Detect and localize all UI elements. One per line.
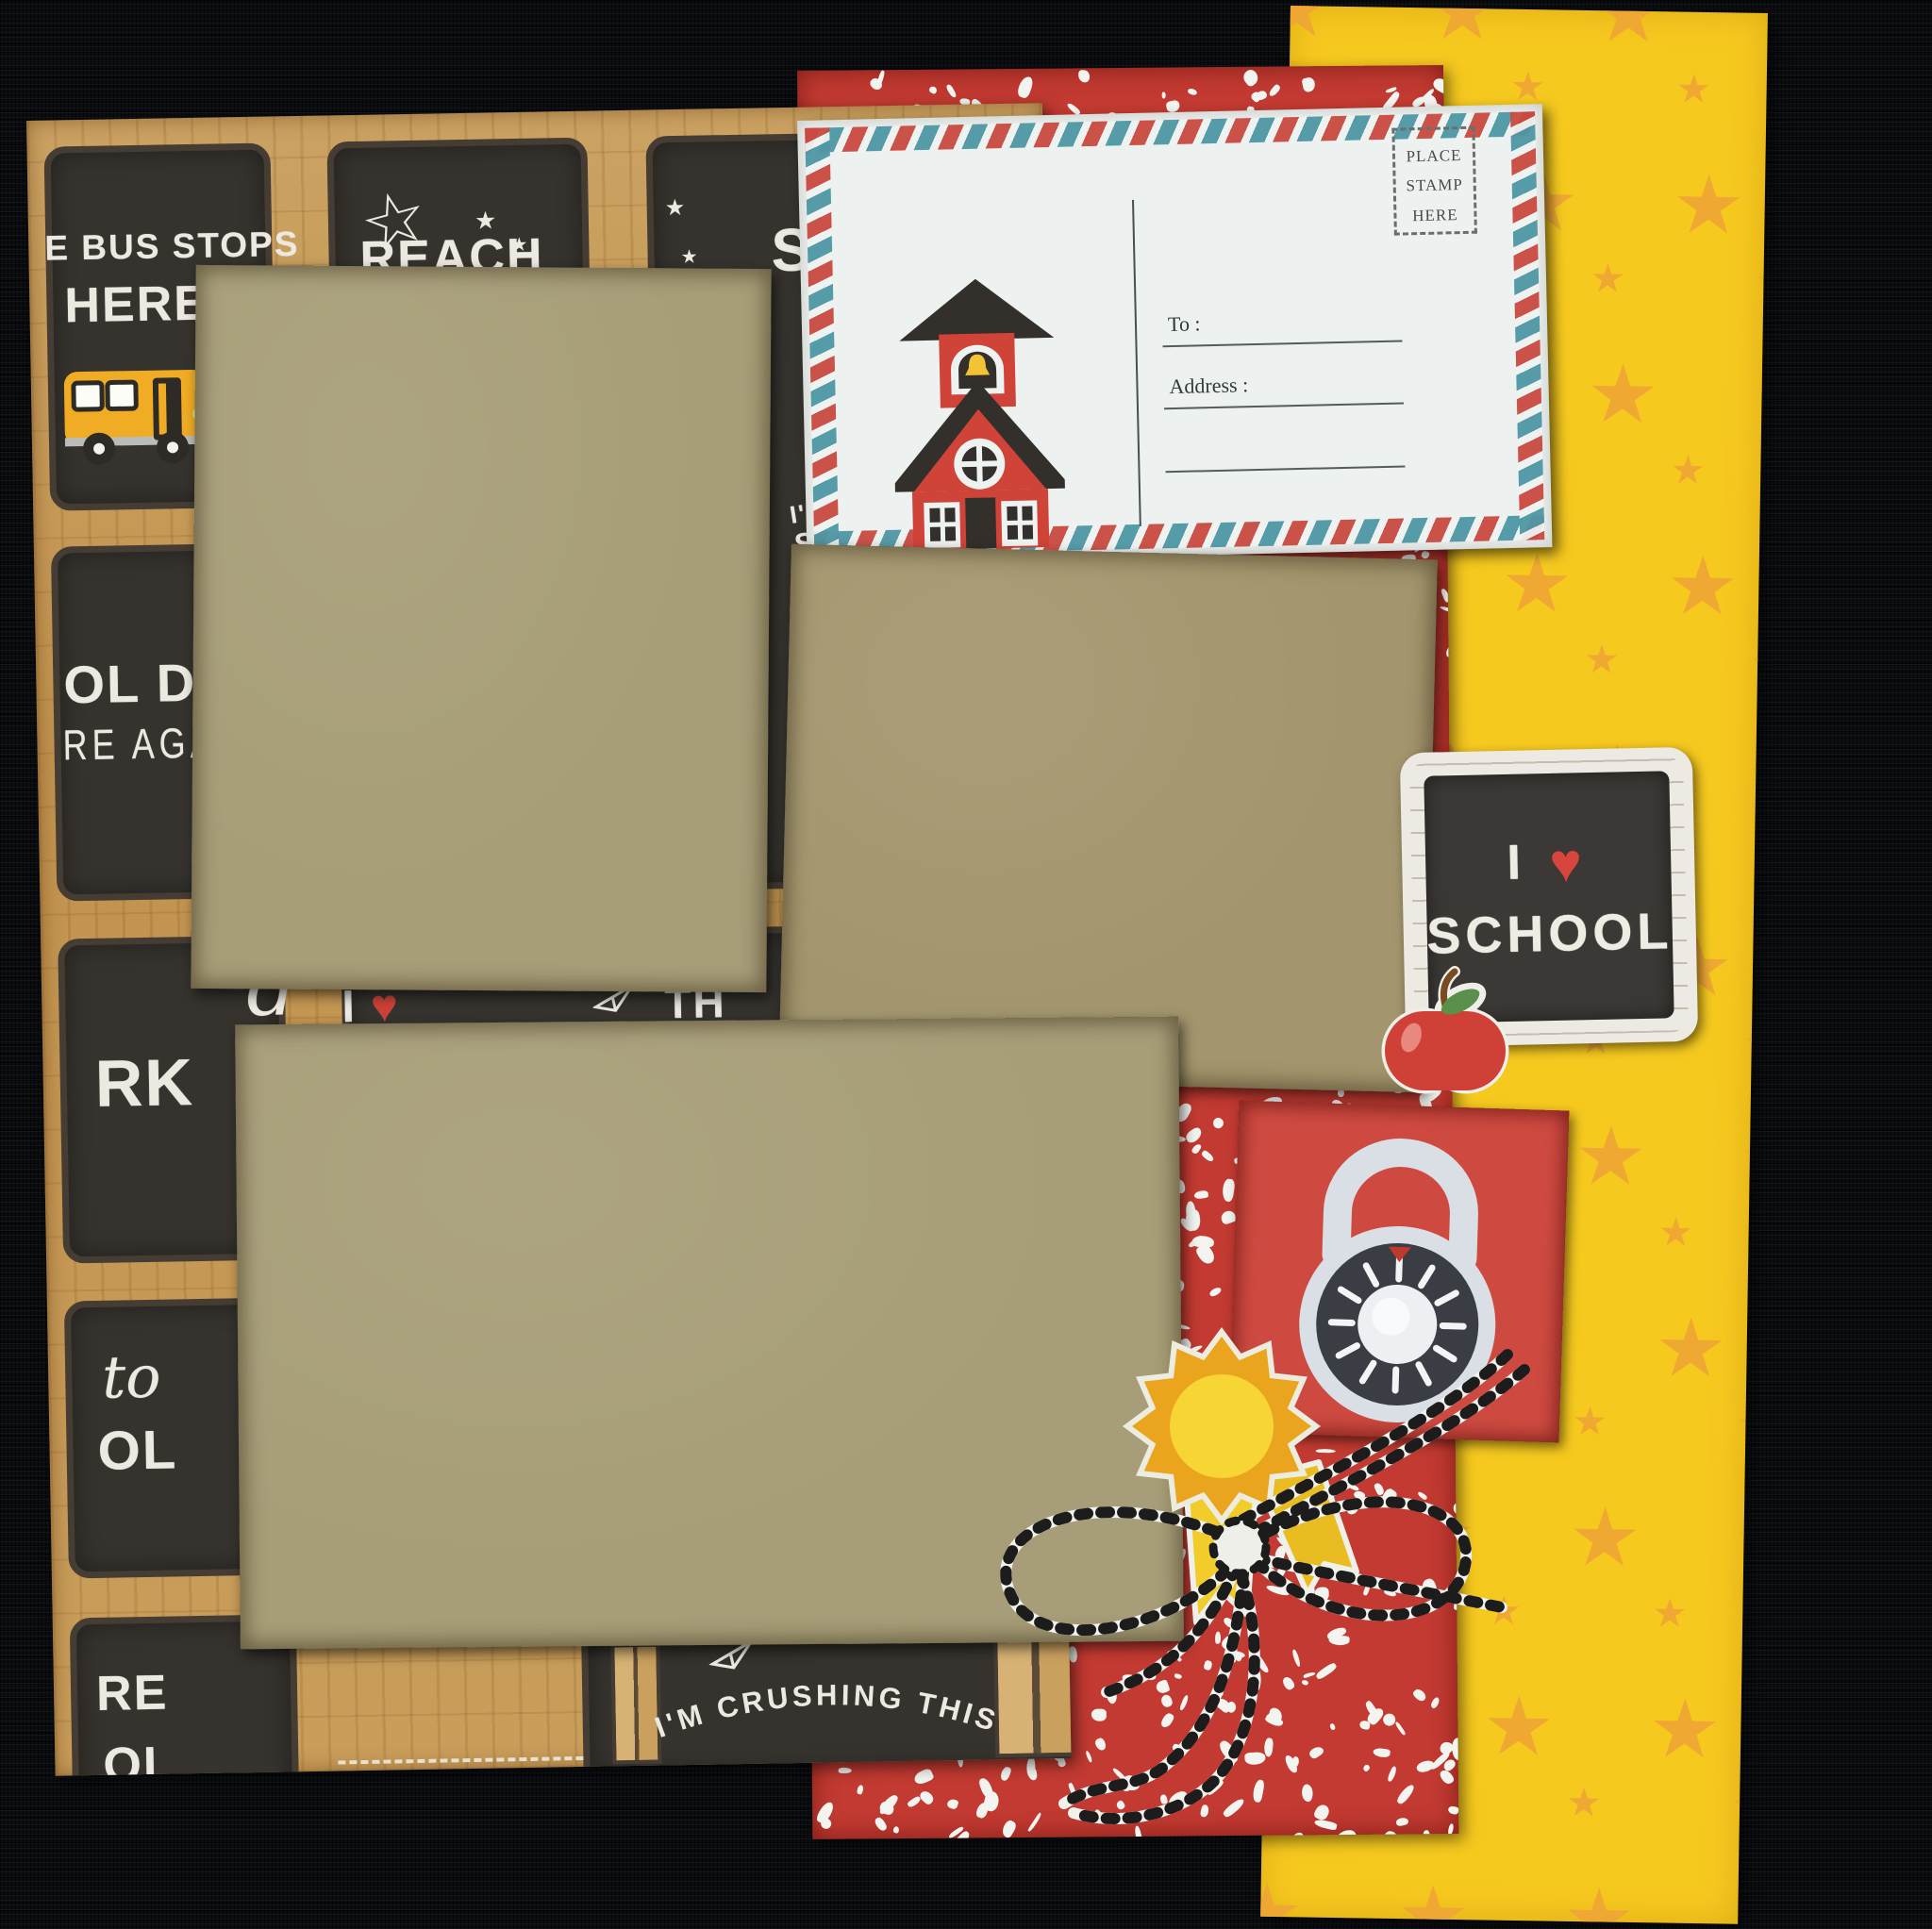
- scrapbook-photo: { "left_paper": { "bus_panel": { "line1"…: [0, 0, 1932, 1929]
- paper-fleck: [839, 1767, 852, 1772]
- star-icon: ★: [1396, 1875, 1470, 1924]
- paper-fleck: [1077, 70, 1090, 83]
- award-badge-and-twine: [924, 1321, 1566, 1835]
- paper-fleck: [1184, 1126, 1204, 1145]
- star-icon: ★: [1654, 1307, 1727, 1389]
- star-icon: ★: [1648, 1688, 1722, 1771]
- paper-fleck: [929, 86, 939, 94]
- to-line: [1163, 341, 1403, 348]
- star-icon: ★: [1672, 164, 1745, 246]
- star-icon: ★: [1260, 6, 1334, 50]
- star-icon: ★: [1572, 1402, 1607, 1442]
- ol-caps-text: OL: [103, 1740, 175, 1776]
- i-text: I: [1507, 835, 1529, 890]
- stamp-box: PLACE STAMP HERE: [1391, 126, 1477, 236]
- star-icon: ★: [1757, 6, 1768, 58]
- paper-fleck: [1209, 1287, 1223, 1298]
- stamp-text: STAMP: [1395, 170, 1474, 201]
- paper-fleck: [1191, 1142, 1203, 1155]
- star-icon: ★: [1727, 1881, 1767, 1924]
- star-icon: ★: [1425, 6, 1499, 52]
- paper-fleck: [1192, 1235, 1215, 1248]
- star-icon: ★: [1746, 738, 1768, 820]
- airmail-border-left: [805, 127, 839, 556]
- paper-fleck: [857, 1785, 864, 1795]
- work-caps-text: RK: [94, 1049, 194, 1117]
- paper-fleck: [908, 1795, 923, 1808]
- star-icon: ★: [1568, 1497, 1641, 1579]
- photo-mat-top-left: [191, 265, 771, 992]
- star-icon: ★: [1590, 258, 1625, 299]
- dashed-rule: [338, 1756, 583, 1765]
- star-icon: ★: [1500, 543, 1574, 625]
- paper-fleck: [1201, 1150, 1216, 1164]
- stamp-text: HERE: [1396, 200, 1474, 231]
- star-icon: ★: [1738, 1405, 1768, 1445]
- paper-fleck: [946, 84, 958, 99]
- star-icon: ★: [1752, 357, 1768, 439]
- star-icon: ★: [1675, 69, 1711, 109]
- star-icon: ★: [1750, 642, 1768, 683]
- paper-fleck: [1241, 68, 1260, 89]
- postcard-divider: [1132, 200, 1141, 526]
- paper-fleck: [1222, 1178, 1236, 1202]
- star-icon: ★: [1584, 640, 1620, 680]
- paper-fleck: [1161, 91, 1166, 98]
- school-caps-text: OL: [97, 1422, 178, 1478]
- star-icon: ★: [1657, 1212, 1693, 1253]
- star-icon: ★: [1666, 545, 1740, 627]
- star-icon: ★: [1509, 67, 1545, 108]
- star-icon: ★: [1743, 1023, 1767, 1064]
- apple-icon: [1379, 964, 1516, 1106]
- star-icon: ★: [1574, 1116, 1647, 1198]
- i-heart-text: I ♥: [1507, 831, 1591, 896]
- heart-icon: ♥: [1549, 832, 1591, 894]
- star-icon: ★: [1562, 1878, 1636, 1924]
- school-bus-icon: [59, 353, 210, 471]
- paper-fleck: [1187, 88, 1197, 96]
- stamp-text: PLACE: [1395, 141, 1474, 172]
- star-icon: ★: [1756, 261, 1768, 302]
- small-star-icon: ★: [665, 197, 686, 220]
- star-icon: ★: [1652, 1593, 1688, 1634]
- bus-stops-text: E BUS STOPS: [44, 226, 300, 266]
- to-label: To :: [1168, 311, 1201, 337]
- photo-mat-right: [778, 544, 1438, 1093]
- here-text: HERE: [64, 279, 208, 331]
- star-icon: ★: [1732, 1786, 1768, 1826]
- paper-fleck: [1211, 1116, 1226, 1131]
- airmail-border-right: [1510, 111, 1544, 540]
- paper-fleck: [1302, 76, 1316, 92]
- schoolhouse-icon: [891, 277, 1066, 551]
- star-icon: ★: [1734, 1500, 1768, 1582]
- paper-fleck: [1268, 83, 1281, 97]
- script-to-text: to: [102, 1348, 161, 1407]
- paper-fleck: [874, 1816, 888, 1832]
- address-line: [1164, 402, 1404, 409]
- star-icon: ★: [1740, 1119, 1768, 1201]
- star-icon: ★: [1260, 1872, 1304, 1923]
- re-caps-text: RE: [96, 1669, 169, 1719]
- paper-fleck: [892, 1825, 899, 1834]
- star-icon: ★: [1670, 450, 1706, 491]
- paper-fleck: [1016, 75, 1035, 100]
- star-icon: ★: [1586, 354, 1659, 436]
- star-icon: ★: [1591, 6, 1665, 55]
- paper-fleck: [1165, 99, 1180, 112]
- blank-line: [1166, 465, 1406, 473]
- small-star-icon: ★: [680, 248, 697, 267]
- school-text: SCHOOL: [1426, 902, 1674, 965]
- address-label: Address :: [1169, 373, 1248, 399]
- star-icon: ★: [1566, 1783, 1602, 1823]
- paper-fleck: [1194, 1190, 1209, 1200]
- postcard: PLACE STAMP HERE To : Address :: [797, 104, 1552, 564]
